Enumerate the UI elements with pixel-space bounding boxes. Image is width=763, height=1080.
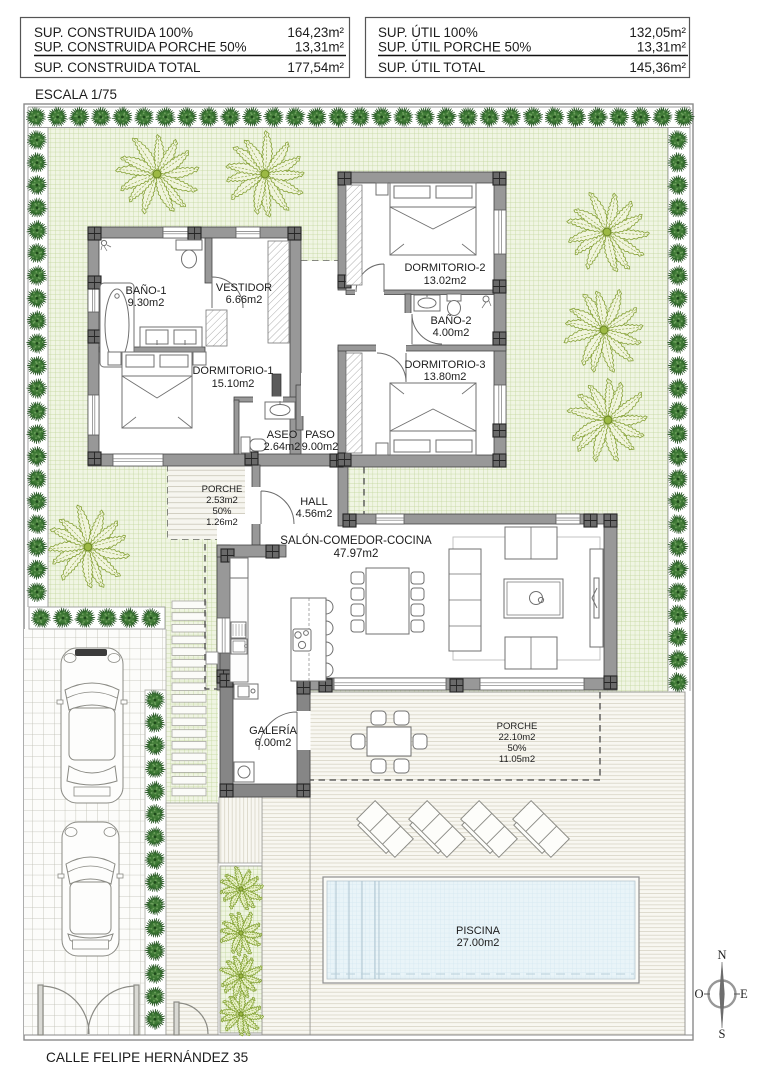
svg-text:6.00m2: 6.00m2 xyxy=(255,737,292,749)
svg-text:SUP. ÚTIL TOTAL: SUP. ÚTIL TOTAL xyxy=(378,60,485,75)
svg-text:9.00m2: 9.00m2 xyxy=(302,441,339,453)
svg-text:4.00m2: 4.00m2 xyxy=(433,327,470,339)
svg-text:13.02m2: 13.02m2 xyxy=(424,275,467,287)
svg-text:13,31m²: 13,31m² xyxy=(295,40,345,55)
svg-text:DORMITORIO-1: DORMITORIO-1 xyxy=(192,365,273,377)
svg-text:6.66m2: 6.66m2 xyxy=(226,294,263,306)
svg-text:ASEO: ASEO xyxy=(267,429,298,441)
svg-text:SUP. CONSTRUIDA 100%: SUP. CONSTRUIDA 100% xyxy=(34,25,193,40)
svg-text:2.64m2: 2.64m2 xyxy=(264,441,301,453)
svg-text:SUP. CONSTRUIDA PORCHE 50%: SUP. CONSTRUIDA PORCHE 50% xyxy=(34,40,247,55)
svg-text:ESCALA 1/75: ESCALA 1/75 xyxy=(35,87,117,102)
svg-text:PASO: PASO xyxy=(305,429,335,441)
svg-text:DORMITORIO-2: DORMITORIO-2 xyxy=(404,262,485,274)
svg-text:145,36m²: 145,36m² xyxy=(629,60,686,75)
svg-text:SUP. ÚTIL PORCHE 50%: SUP. ÚTIL PORCHE 50% xyxy=(378,40,531,55)
svg-text:13,31m²: 13,31m² xyxy=(637,40,687,55)
svg-text:BAÑO-2: BAÑO-2 xyxy=(431,314,472,327)
svg-text:BAÑO-1: BAÑO-1 xyxy=(126,284,167,297)
svg-text:CALLE FELIPE HERNÁNDEZ 35: CALLE FELIPE HERNÁNDEZ 35 xyxy=(46,1050,248,1065)
svg-text:11.05m2: 11.05m2 xyxy=(499,754,535,765)
svg-text:4.56m2: 4.56m2 xyxy=(296,508,333,520)
svg-text:SUP. ÚTIL 100%: SUP. ÚTIL 100% xyxy=(378,25,478,40)
svg-text:15.10m2: 15.10m2 xyxy=(212,378,255,390)
svg-text:SALÓN-COMEDOR-COCINA: SALÓN-COMEDOR-COCINA xyxy=(280,534,432,547)
svg-text:22.10m2: 22.10m2 xyxy=(499,732,536,743)
svg-text:N: N xyxy=(717,948,726,962)
svg-text:HALL: HALL xyxy=(300,496,328,508)
svg-text:SUP. CONSTRUIDA TOTAL: SUP. CONSTRUIDA TOTAL xyxy=(34,60,200,75)
svg-text:PISCINA: PISCINA xyxy=(456,925,501,937)
svg-text:13.80m2: 13.80m2 xyxy=(424,371,467,383)
svg-text:DORMITORIO-3: DORMITORIO-3 xyxy=(404,359,485,371)
svg-text:S: S xyxy=(719,1027,726,1041)
svg-text:50%: 50% xyxy=(212,506,232,517)
svg-text:E: E xyxy=(740,987,748,1001)
svg-text:164,23m²: 164,23m² xyxy=(287,25,344,40)
svg-text:1.26m2: 1.26m2 xyxy=(206,517,238,528)
svg-text:VESTIDOR: VESTIDOR xyxy=(216,282,272,294)
svg-text:47.97m2: 47.97m2 xyxy=(334,548,379,560)
svg-text:9.30m2: 9.30m2 xyxy=(128,297,165,309)
svg-text:177,54m²: 177,54m² xyxy=(287,60,344,75)
svg-text:50%: 50% xyxy=(507,743,527,754)
svg-text:2.53m2: 2.53m2 xyxy=(206,495,238,506)
svg-text:27.00m2: 27.00m2 xyxy=(457,937,500,949)
svg-text:O: O xyxy=(694,987,703,1001)
svg-text:PORCHE: PORCHE xyxy=(202,484,243,495)
svg-text:GALERÍA: GALERÍA xyxy=(249,724,297,737)
svg-text:132,05m²: 132,05m² xyxy=(629,25,686,40)
svg-text:PORCHE: PORCHE xyxy=(497,721,538,732)
